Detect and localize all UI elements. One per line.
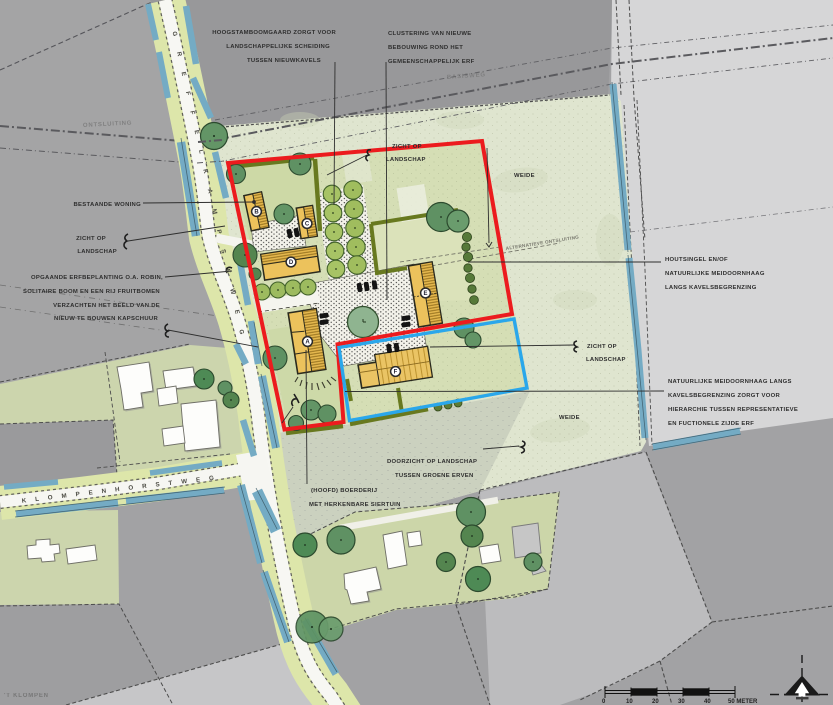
svg-text:EN FUCTIONELE ZIJDE ERF: EN FUCTIONELE ZIJDE ERF bbox=[668, 421, 754, 427]
svg-text:DOORZICHT OP LANDSCHAP: DOORZICHT OP LANDSCHAP bbox=[387, 459, 477, 465]
svg-text:ZICHT OP: ZICHT OP bbox=[76, 236, 106, 242]
svg-text:WEIDE: WEIDE bbox=[514, 173, 535, 179]
svg-text:NATUURLIJKE MEIDOORNHAAG: NATUURLIJKE MEIDOORNHAAG bbox=[665, 271, 765, 277]
svg-text:OPGAANDE ERFBEPLANTING O.A. RO: OPGAANDE ERFBEPLANTING O.A. ROBIN, bbox=[31, 275, 163, 281]
svg-text:E: E bbox=[423, 291, 427, 297]
svg-text:50 METER: 50 METER bbox=[728, 699, 758, 705]
svg-text:GEMEENSCHAPPELIJK ERF: GEMEENSCHAPPELIJK ERF bbox=[388, 59, 475, 65]
svg-text:30: 30 bbox=[678, 699, 685, 705]
svg-text:MET HERKENBARE SIERTUIN: MET HERKENBARE SIERTUIN bbox=[309, 502, 401, 508]
svg-text:C: C bbox=[305, 222, 310, 228]
svg-text:BEBOUWING ROND HET: BEBOUWING ROND HET bbox=[388, 45, 463, 51]
svg-text:HOUTSINGEL EN/OF: HOUTSINGEL EN/OF bbox=[665, 257, 728, 263]
svg-text:D: D bbox=[289, 260, 294, 266]
svg-text:HOOGSTAMBOOMGAARD ZORGT VOOR: HOOGSTAMBOOMGAARD ZORGT VOOR bbox=[212, 30, 336, 36]
svg-text:20: 20 bbox=[652, 699, 659, 705]
svg-text:40: 40 bbox=[704, 699, 711, 705]
svg-text:'T KLOMPEN: 'T KLOMPEN bbox=[4, 693, 49, 699]
svg-text:BESTAANDE WONING: BESTAANDE WONING bbox=[73, 202, 141, 208]
svg-text:LANDSCHAP: LANDSCHAP bbox=[586, 357, 626, 363]
svg-text:KAVELSBEGRENZING ZORGT VOOR: KAVELSBEGRENZING ZORGT VOOR bbox=[668, 393, 781, 399]
svg-text:NATUURLIJKE MEIDOORNHAAG LANGS: NATUURLIJKE MEIDOORNHAAG LANGS bbox=[668, 379, 792, 385]
svg-text:(HOOFD) BOERDERIJ: (HOOFD) BOERDERIJ bbox=[311, 488, 377, 494]
svg-text:LANDSCHAP: LANDSCHAP bbox=[77, 249, 117, 255]
svg-text:SOLITAIRE BOOM EN EEN RIJ FRUI: SOLITAIRE BOOM EN EEN RIJ FRUITBOMEN bbox=[23, 289, 160, 295]
svg-text:HIERARCHIE TUSSEN REPRESENTATI: HIERARCHIE TUSSEN REPRESENTATIEVE bbox=[668, 407, 798, 413]
svg-text:CLUSTERING VAN NIEUWE: CLUSTERING VAN NIEUWE bbox=[388, 31, 471, 37]
svg-text:LANDSCHAPPELIJKE SCHEIDING: LANDSCHAPPELIJKE SCHEIDING bbox=[226, 44, 330, 50]
svg-text:LANDSCHAP: LANDSCHAP bbox=[386, 157, 426, 163]
svg-text:NIEUW TE BOUWEN KAPSCHUUR: NIEUW TE BOUWEN KAPSCHUUR bbox=[54, 316, 158, 322]
svg-text:B: B bbox=[254, 210, 259, 216]
svg-text:TUSSEN GROENE ERVEN: TUSSEN GROENE ERVEN bbox=[395, 473, 474, 479]
svg-text:F: F bbox=[394, 370, 398, 376]
svg-text:ZICHT OP: ZICHT OP bbox=[392, 144, 422, 150]
svg-text:A: A bbox=[305, 340, 310, 346]
svg-text:VERZACHTEN HET BEELD VAN DE: VERZACHTEN HET BEELD VAN DE bbox=[53, 303, 160, 309]
svg-text:WEIDE: WEIDE bbox=[559, 415, 580, 421]
svg-text:10: 10 bbox=[626, 699, 633, 705]
svg-text:TUSSEN NIEUWKAVELS: TUSSEN NIEUWKAVELS bbox=[247, 58, 321, 64]
svg-text:LANGS KAVELSBEGRENZING: LANGS KAVELSBEGRENZING bbox=[665, 285, 757, 291]
svg-text:ZICHT OP: ZICHT OP bbox=[587, 344, 617, 350]
